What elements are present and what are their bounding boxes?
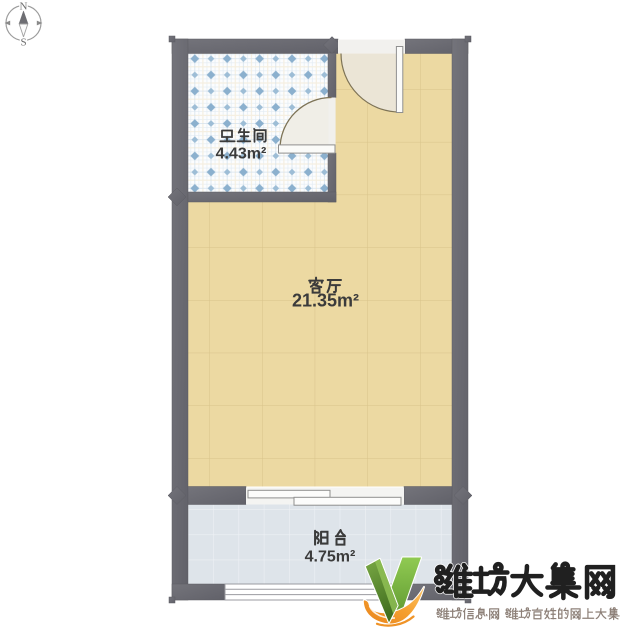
- svg-text:N: N: [20, 1, 28, 13]
- svg-text:4.75m²: 4.75m²: [305, 549, 356, 566]
- svg-text:21.35m²: 21.35m²: [292, 291, 359, 311]
- svg-text:S: S: [20, 37, 26, 49]
- svg-text:4.43m²: 4.43m²: [216, 146, 267, 163]
